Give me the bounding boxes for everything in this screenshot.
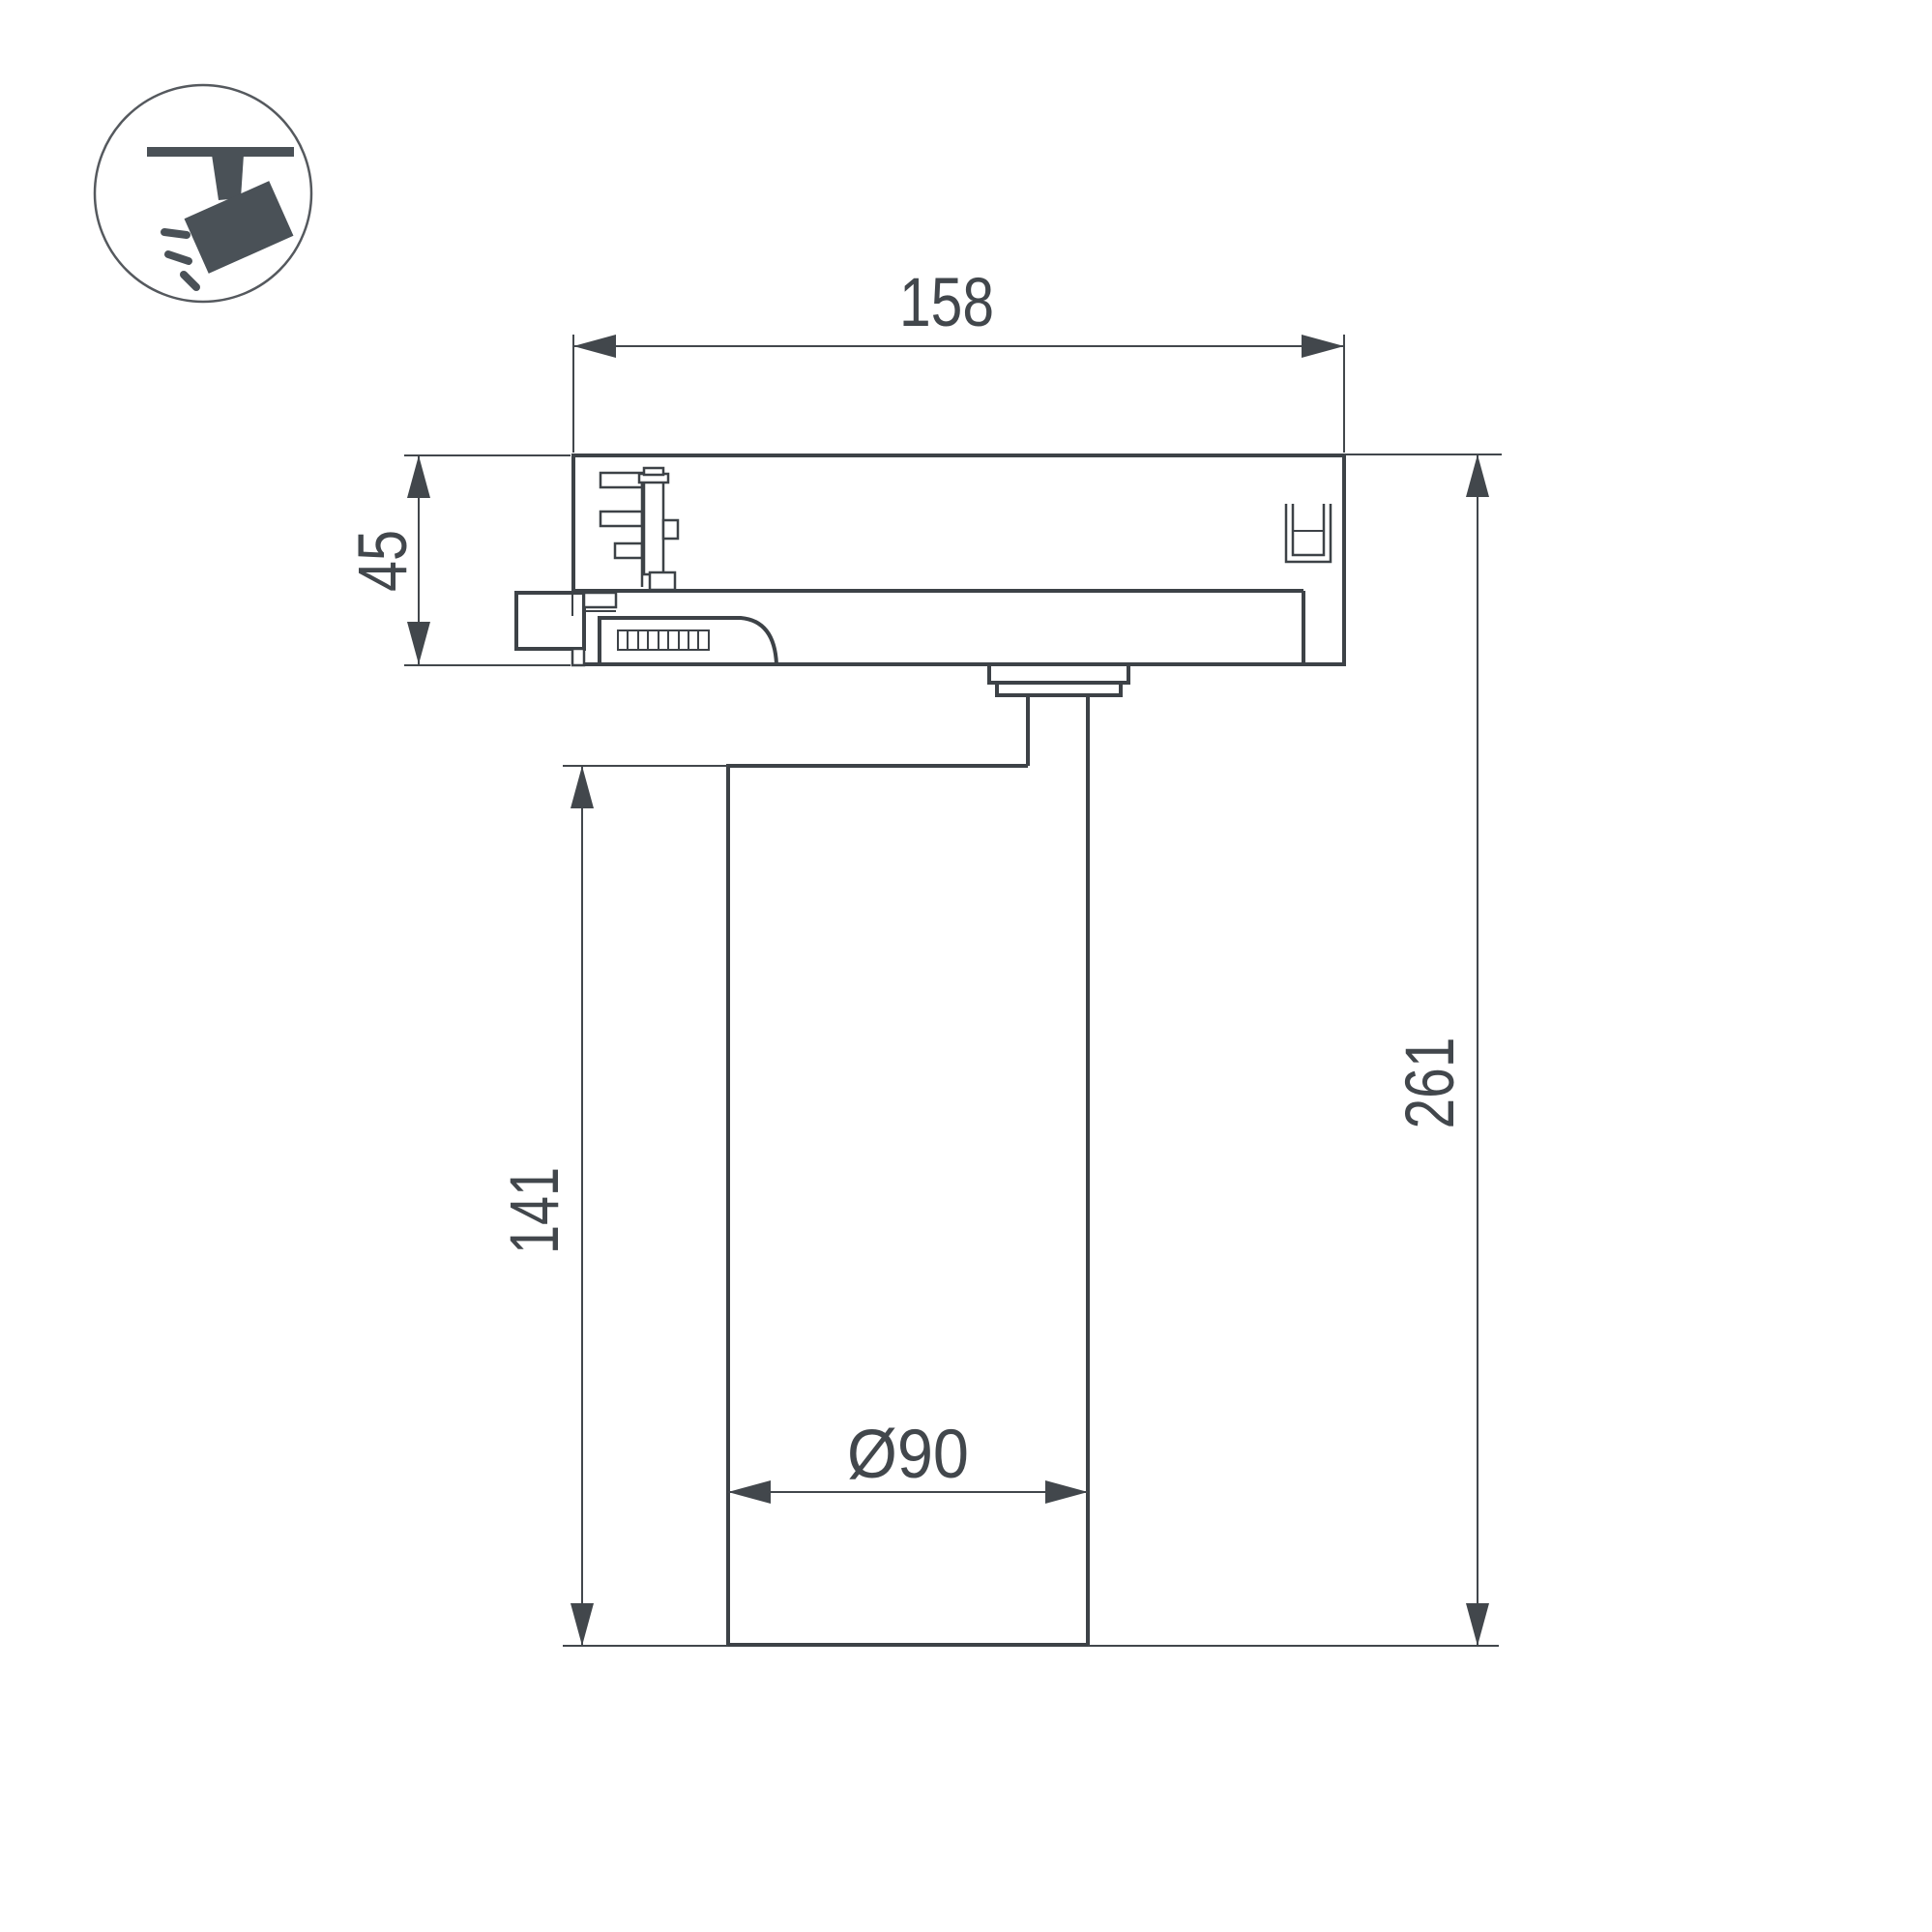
contact-pin <box>615 543 642 558</box>
latch-notch <box>584 593 616 607</box>
page-canvas: 158 45 141 261 <box>0 0 1932 1932</box>
arrow-down-icon <box>571 1603 594 1646</box>
icon-circle <box>95 85 311 302</box>
arrow-right-icon <box>1302 335 1344 358</box>
track-light-icon <box>95 85 311 302</box>
connector-rod <box>644 482 663 574</box>
dimension-label-body-height: 141 <box>497 1167 573 1254</box>
dimension-width: 158 <box>573 265 1344 453</box>
rod-cap-top <box>644 468 663 475</box>
arrow-down-icon <box>407 622 430 664</box>
light-ray-icon <box>164 232 187 235</box>
dimension-label-adapter-height: 45 <box>345 530 422 592</box>
pivot-step-lower <box>997 683 1121 695</box>
side-latch-box <box>516 593 584 649</box>
arrow-up-icon <box>571 766 594 808</box>
rod-foot <box>650 572 675 590</box>
dimension-label-diameter: Ø90 <box>847 1417 969 1493</box>
arrow-up-icon <box>1466 454 1489 497</box>
drawing-svg: 158 45 141 261 <box>0 0 1932 1932</box>
rod-nub <box>663 520 678 539</box>
latch-step <box>572 649 584 665</box>
contact-pin <box>600 473 642 487</box>
arrow-left-icon <box>573 335 616 358</box>
lamp-body <box>728 766 1088 1645</box>
dimension-label-width: 158 <box>899 265 994 341</box>
arrow-up-icon <box>407 455 430 498</box>
contact-pin <box>600 512 642 526</box>
pivot-step-upper <box>989 664 1128 683</box>
dimension-body-height: 141 <box>497 766 728 1646</box>
dimension-label-total-height: 261 <box>1392 1038 1469 1129</box>
arrow-down-icon <box>1466 1603 1489 1646</box>
